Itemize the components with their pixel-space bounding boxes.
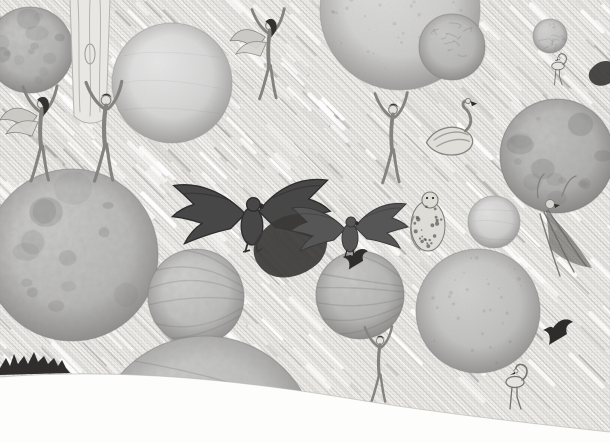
sphere-small-sphere-top-right — [533, 19, 567, 53]
figure-dark-scribble-top-right — [589, 61, 610, 86]
figure-spotted-bird-right-center — [411, 192, 445, 251]
figure-dancer-center — [375, 93, 407, 183]
sphere-small-sphere-mid-right — [468, 196, 520, 248]
figure-flamingo-top-right — [552, 54, 567, 85]
artwork-canvas — [0, 0, 610, 443]
sphere-moon-top-left — [0, 7, 73, 93]
sphere-shaded-sphere-right — [500, 99, 610, 213]
sphere-swirl-sphere-center — [316, 251, 404, 339]
figure-winged-fairy-left — [0, 86, 57, 181]
sphere-swirl-sphere-mid-left — [148, 249, 244, 345]
pencil-drawing-scene — [0, 0, 610, 443]
sphere-speckled-sphere-right-bottom — [416, 249, 540, 373]
figure-dark-bird-silhouette-right — [543, 319, 573, 345]
sphere-great-moon-left — [0, 169, 158, 341]
figure-flamingo-bottom-right — [506, 364, 527, 409]
sphere-bubble-large-left — [112, 23, 232, 143]
sphere-scribble-sphere-top — [419, 14, 485, 80]
